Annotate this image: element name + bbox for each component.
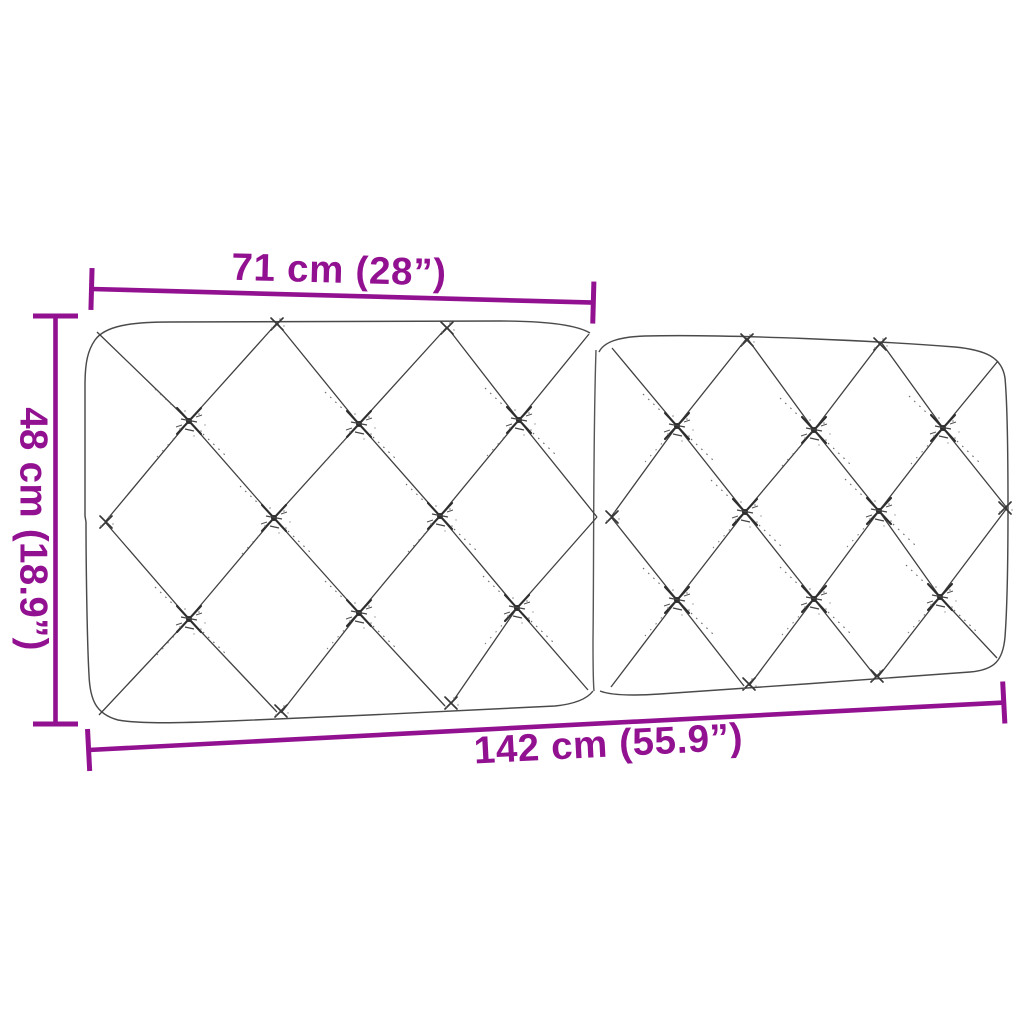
svg-text:48 cm (18.9”): 48 cm (18.9”) (12, 407, 55, 651)
svg-text:71 cm (28”): 71 cm (28”) (231, 246, 447, 295)
svg-text:142 cm (55.9”): 142 cm (55.9”) (473, 716, 744, 773)
